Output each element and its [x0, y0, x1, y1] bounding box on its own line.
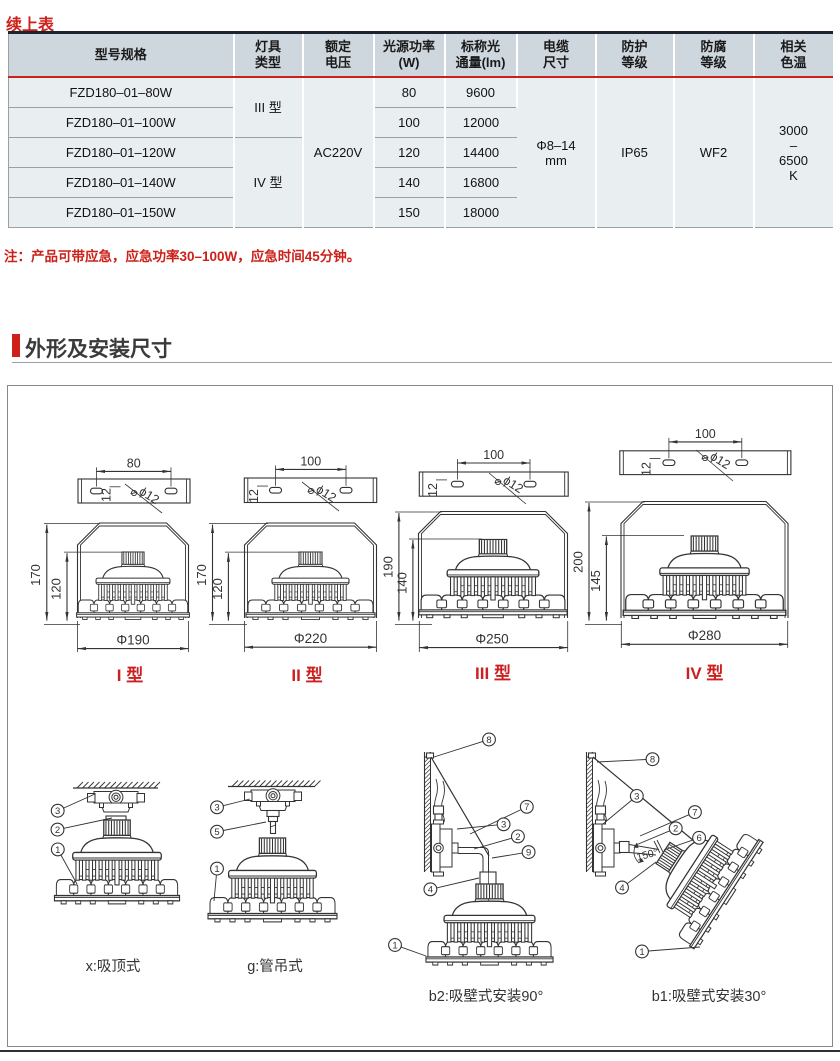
svg-text:II 型: II 型 — [291, 665, 322, 685]
svg-text:12: 12 — [640, 462, 654, 476]
svg-text:150°: 150° — [635, 847, 659, 864]
svg-text:2: 2 — [673, 824, 678, 835]
svg-text:140: 140 — [394, 572, 409, 594]
svg-text:3: 3 — [214, 803, 219, 814]
svg-text:x:吸顶式: x:吸顶式 — [86, 958, 141, 975]
svg-text:1: 1 — [214, 864, 219, 875]
svg-text:3: 3 — [634, 791, 639, 802]
svg-text:Φ250: Φ250 — [475, 632, 508, 647]
svg-text:5: 5 — [214, 827, 219, 838]
svg-text:100: 100 — [695, 427, 716, 441]
svg-text:4: 4 — [619, 883, 624, 894]
svg-text:8: 8 — [650, 755, 655, 766]
svg-text:1: 1 — [639, 947, 644, 958]
svg-text:120: 120 — [210, 578, 225, 600]
svg-text:200: 200 — [571, 551, 586, 573]
svg-text:IV 型: IV 型 — [686, 663, 724, 683]
svg-text:9: 9 — [526, 848, 531, 859]
svg-text:b2:吸壁式安装90°: b2:吸壁式安装90° — [429, 988, 544, 1005]
svg-text:b1:吸壁式安装30°: b1:吸壁式安装30° — [652, 988, 767, 1005]
svg-text:6: 6 — [696, 833, 701, 844]
svg-text:4: 4 — [428, 885, 433, 896]
svg-text:7: 7 — [692, 808, 697, 819]
svg-text:12: 12 — [247, 489, 261, 503]
svg-text:I 型: I 型 — [117, 665, 143, 685]
svg-text:1: 1 — [55, 845, 60, 856]
svg-text:2: 2 — [55, 825, 60, 836]
svg-text:12: 12 — [426, 483, 440, 497]
svg-text:170: 170 — [28, 564, 43, 586]
svg-text:12: 12 — [100, 488, 114, 502]
svg-text:100: 100 — [300, 454, 321, 468]
svg-text:III 型: III 型 — [475, 663, 511, 683]
svg-text:100: 100 — [483, 448, 504, 462]
svg-text:Φ280: Φ280 — [688, 628, 721, 643]
svg-text:Φ220: Φ220 — [294, 631, 327, 646]
svg-text:145: 145 — [588, 570, 603, 592]
svg-text:3: 3 — [55, 806, 60, 817]
svg-text:2: 2 — [515, 832, 520, 843]
svg-text:170: 170 — [194, 564, 209, 586]
svg-text:8: 8 — [486, 735, 491, 746]
svg-text:1: 1 — [392, 940, 397, 951]
svg-text:3: 3 — [501, 820, 506, 831]
svg-text:Φ190: Φ190 — [116, 633, 149, 648]
svg-text:120: 120 — [49, 578, 64, 600]
svg-text:7: 7 — [524, 802, 529, 813]
svg-text:g:管吊式: g:管吊式 — [247, 958, 303, 975]
svg-text:80: 80 — [127, 456, 141, 470]
svg-text:190: 190 — [381, 556, 396, 578]
